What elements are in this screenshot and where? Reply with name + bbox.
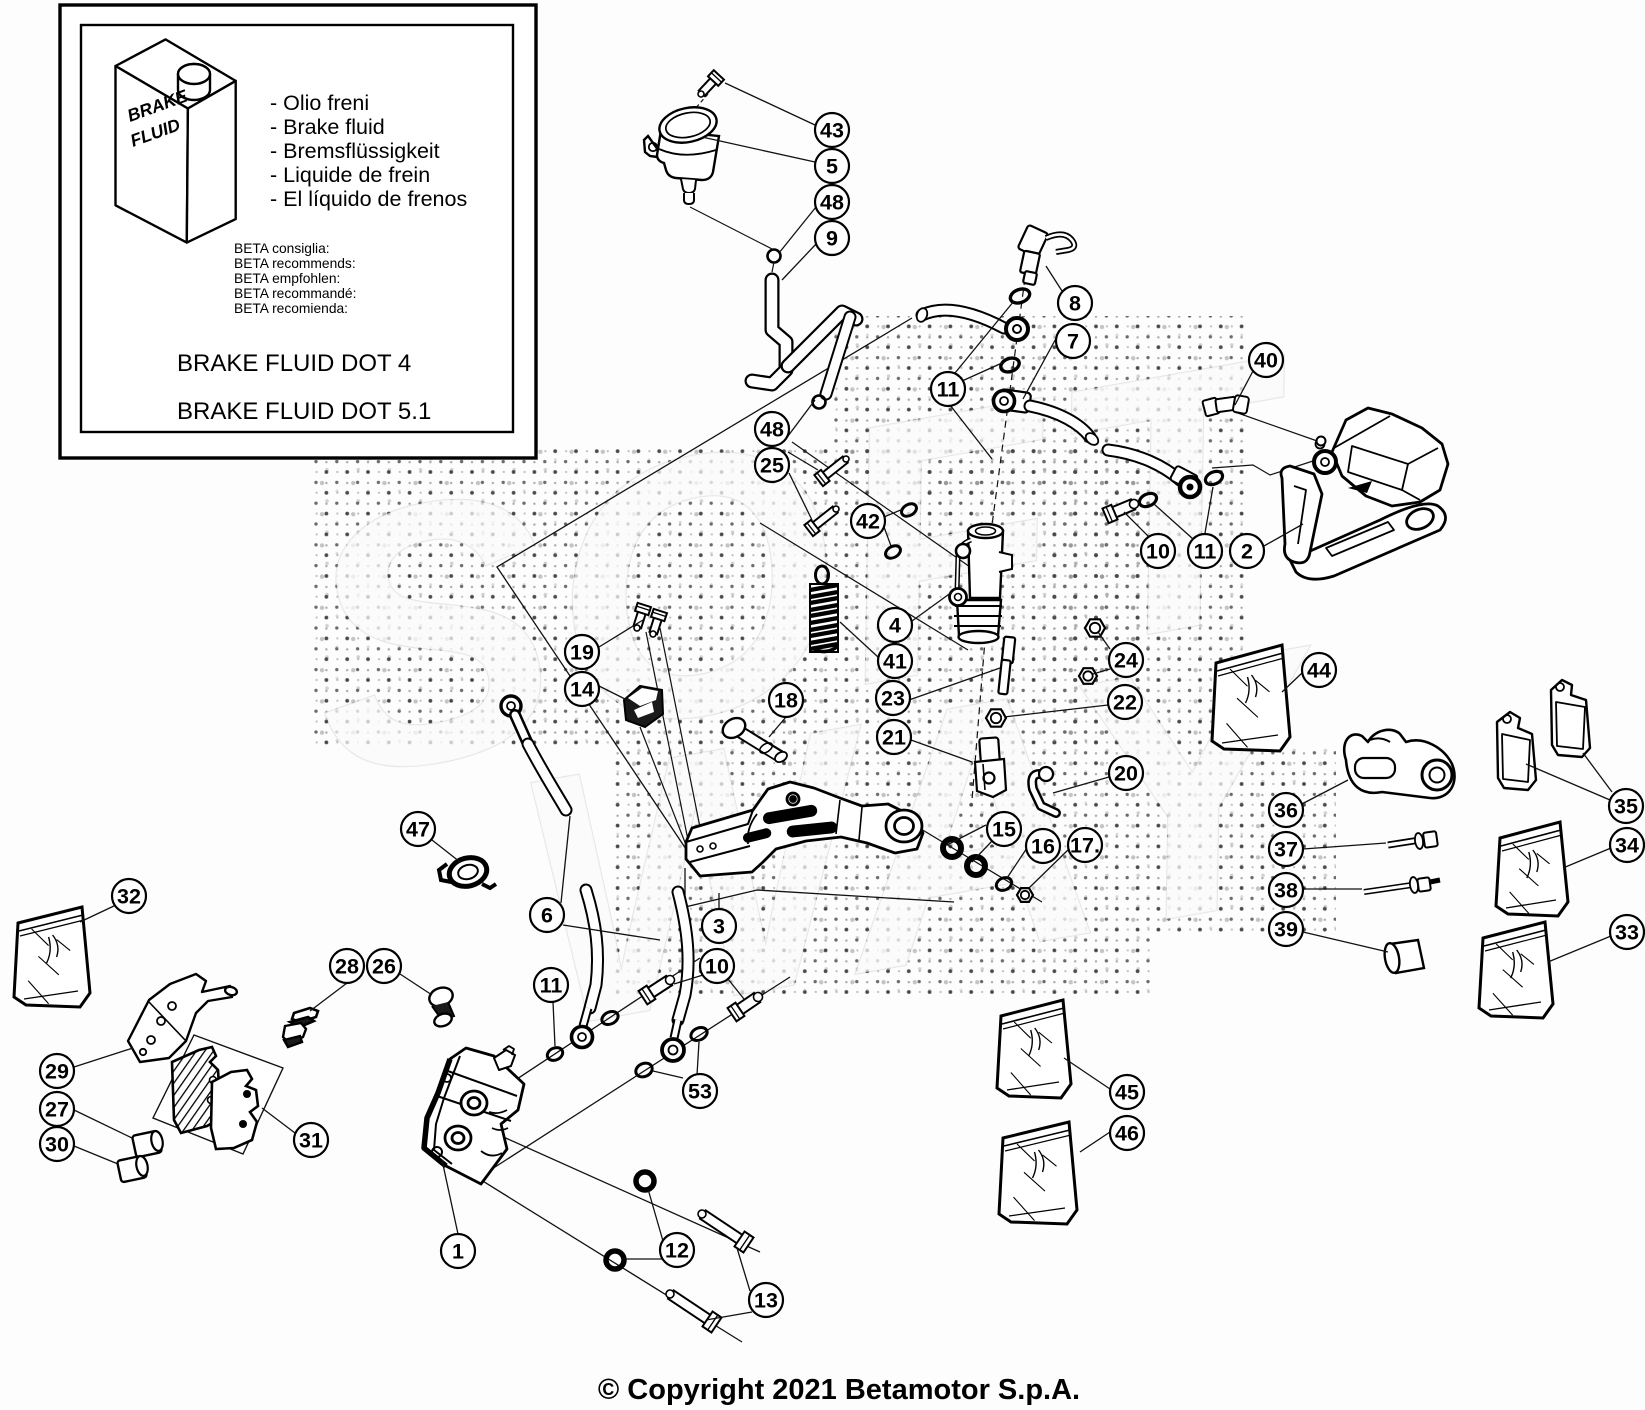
svg-text:30: 30 [45, 1133, 69, 1157]
svg-text:3: 3 [713, 915, 725, 939]
svg-text:1: 1 [452, 1240, 464, 1264]
svg-text:16: 16 [1031, 835, 1055, 859]
svg-text:25: 25 [760, 454, 784, 478]
svg-text:28: 28 [335, 955, 359, 979]
svg-text:BETA recommandé:: BETA recommandé: [234, 286, 356, 301]
svg-text:44: 44 [1307, 659, 1331, 683]
svg-text:12: 12 [665, 1239, 689, 1263]
svg-text:- Brake fluid: - Brake fluid [270, 115, 385, 139]
svg-text:BETA recommends:: BETA recommends: [234, 256, 356, 271]
svg-text:36: 36 [1274, 799, 1298, 823]
svg-text:47: 47 [406, 818, 430, 842]
svg-text:10: 10 [705, 955, 729, 979]
svg-text:9: 9 [826, 227, 838, 251]
svg-text:- El líquido de frenos: - El líquido de frenos [270, 187, 467, 211]
svg-text:21: 21 [882, 726, 906, 750]
svg-text:8: 8 [1069, 292, 1081, 316]
svg-text:45: 45 [1115, 1081, 1139, 1105]
svg-text:BETA consiglia:: BETA consiglia: [234, 241, 330, 256]
svg-text:48: 48 [820, 191, 844, 215]
svg-text:- Liquide de frein: - Liquide de frein [270, 163, 430, 187]
svg-text:2: 2 [1241, 540, 1253, 564]
svg-text:© Copyright 2021 Betamotor S.p: © Copyright 2021 Betamotor S.p.A. [598, 1374, 1080, 1406]
svg-text:23: 23 [881, 687, 905, 711]
svg-text:46: 46 [1115, 1122, 1139, 1146]
svg-text:43: 43 [820, 119, 844, 143]
svg-text:14: 14 [570, 678, 594, 702]
svg-text:11: 11 [937, 378, 960, 402]
svg-text:33: 33 [1615, 921, 1639, 945]
svg-text:17.: 17. [1070, 834, 1100, 858]
svg-text:BRAKE FLUID DOT 4: BRAKE FLUID DOT 4 [177, 350, 411, 377]
svg-text:6: 6 [541, 904, 553, 928]
svg-text:38: 38 [1274, 879, 1298, 903]
svg-text:48: 48 [760, 418, 784, 442]
svg-text:18: 18 [774, 689, 798, 713]
svg-text:5: 5 [826, 155, 838, 179]
svg-text:35: 35 [1614, 795, 1638, 819]
svg-text:- Olio freni: - Olio freni [270, 91, 369, 115]
svg-text:32: 32 [117, 885, 141, 909]
svg-text:BRAKE FLUID DOT 5.1: BRAKE FLUID DOT 5.1 [177, 398, 431, 425]
svg-text:11: 11 [1194, 540, 1217, 564]
svg-text:7: 7 [1067, 330, 1079, 354]
svg-text:31: 31 [299, 1129, 323, 1153]
svg-text:20: 20 [1114, 762, 1138, 786]
svg-text:24: 24 [1114, 649, 1138, 673]
svg-text:34: 34 [1615, 834, 1639, 858]
svg-text:37: 37 [1274, 838, 1298, 862]
svg-text:40: 40 [1254, 349, 1278, 373]
svg-text:42: 42 [856, 510, 880, 534]
svg-text:19: 19 [570, 641, 594, 665]
svg-text:15: 15 [992, 818, 1016, 842]
svg-text:26: 26 [372, 955, 396, 979]
svg-text:13: 13 [754, 1289, 778, 1313]
svg-text:53: 53 [688, 1080, 712, 1104]
svg-text:29: 29 [45, 1060, 69, 1084]
svg-text:10: 10 [1146, 540, 1170, 564]
svg-text:- Bremsflüssigkeit: - Bremsflüssigkeit [270, 139, 440, 163]
svg-text:4: 4 [889, 614, 901, 638]
svg-text:41: 41 [883, 650, 907, 674]
svg-text:22: 22 [1113, 691, 1137, 715]
svg-text:11: 11 [540, 974, 563, 998]
svg-text:27: 27 [45, 1098, 69, 1122]
svg-text:BETA recomienda:: BETA recomienda: [234, 301, 348, 316]
svg-text:39: 39 [1274, 918, 1298, 942]
svg-text:BETA empfohlen:: BETA empfohlen: [234, 271, 340, 286]
